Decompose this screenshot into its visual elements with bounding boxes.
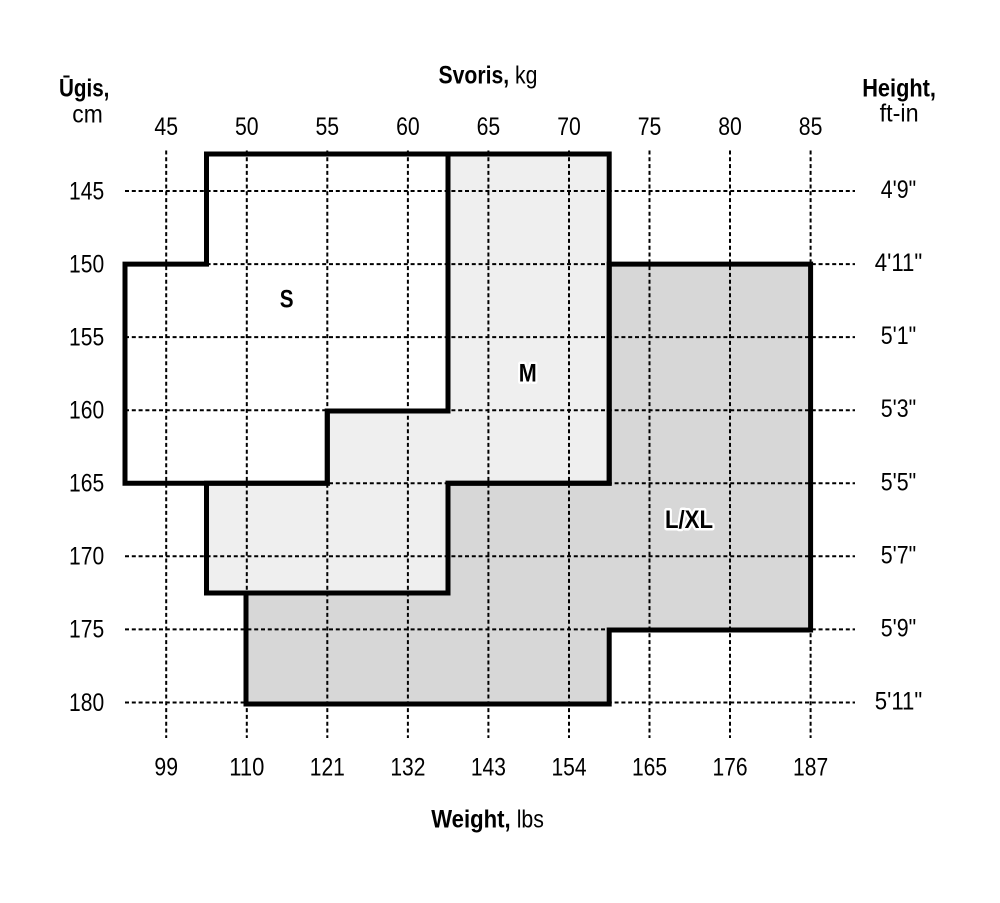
svg-text:kg: kg (515, 61, 537, 89)
svg-text:Height,: Height, (862, 74, 936, 102)
svg-text:75: 75 (638, 113, 662, 141)
svg-text:170: 170 (69, 543, 104, 571)
svg-text:lbs: lbs (517, 805, 544, 833)
svg-text:50: 50 (235, 113, 259, 141)
svg-text:132: 132 (390, 754, 425, 782)
svg-text:4'9": 4'9" (881, 176, 916, 204)
svg-text:55: 55 (316, 113, 340, 141)
svg-text:160: 160 (69, 397, 104, 425)
svg-text:175: 175 (69, 616, 104, 644)
svg-text:5'3": 5'3" (881, 395, 916, 423)
svg-text:60: 60 (396, 113, 420, 141)
svg-text:145: 145 (69, 177, 104, 205)
svg-text:180: 180 (69, 689, 104, 717)
svg-text:80: 80 (718, 113, 742, 141)
svg-text:85: 85 (799, 113, 823, 141)
svg-text:121: 121 (310, 754, 345, 782)
svg-text:5'7": 5'7" (881, 541, 916, 569)
svg-text:150: 150 (69, 250, 104, 278)
svg-text:155: 155 (69, 323, 104, 351)
svg-text:5'1": 5'1" (881, 322, 916, 350)
svg-text:Svoris,: Svoris, (439, 61, 510, 89)
svg-text:5'9": 5'9" (881, 614, 916, 642)
svg-text:5'5": 5'5" (881, 468, 916, 496)
svg-text:187: 187 (793, 754, 828, 782)
svg-text:110: 110 (229, 754, 264, 782)
svg-text:Ūgis,: Ūgis, (59, 75, 109, 103)
svg-text:S: S (280, 286, 294, 314)
svg-text:Weight,: Weight, (431, 805, 510, 833)
svg-text:165: 165 (632, 754, 667, 782)
svg-text:70: 70 (557, 113, 581, 141)
svg-text:176: 176 (712, 754, 747, 782)
svg-text:5'11": 5'11" (875, 688, 923, 716)
svg-text:154: 154 (551, 754, 586, 782)
svg-text:165: 165 (69, 470, 104, 498)
svg-text:99: 99 (154, 754, 178, 782)
svg-text:L/XL: L/XL (665, 506, 713, 534)
svg-text:cm: cm (72, 101, 103, 129)
svg-text:4'11": 4'11" (875, 249, 923, 277)
svg-text:65: 65 (477, 113, 501, 141)
svg-text:M: M (519, 359, 537, 387)
svg-text:143: 143 (471, 754, 506, 782)
svg-text:ft-in: ft-in (880, 100, 919, 128)
svg-text:45: 45 (154, 113, 178, 141)
